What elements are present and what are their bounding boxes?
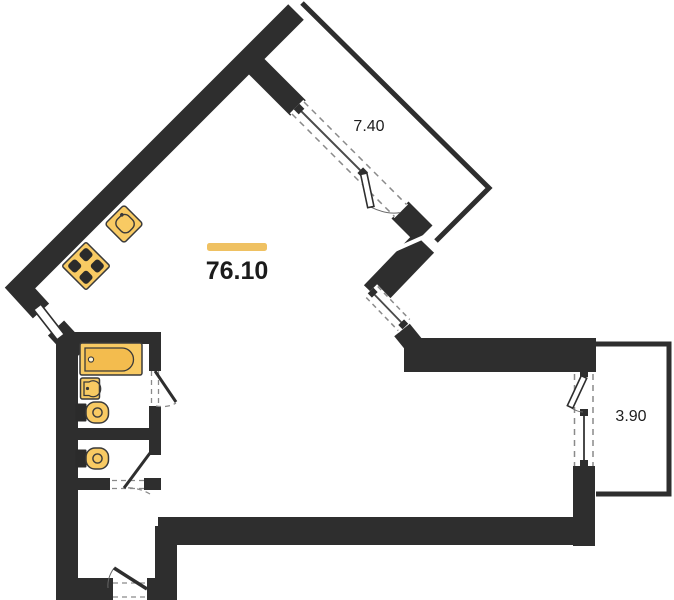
door-swing-arc	[156, 403, 176, 407]
toilet-bowl	[86, 402, 109, 423]
toilet-tank	[76, 450, 87, 468]
floor-plan-page: 76.10 7.40 3.90	[0, 0, 674, 600]
entrance-door	[108, 568, 147, 597]
balcony-walls	[302, 3, 669, 494]
bathtub-drain	[88, 357, 93, 362]
bathroom-door	[152, 371, 177, 407]
toilet-tank	[76, 404, 87, 422]
window-top-balcony	[282, 100, 408, 226]
window-tick	[580, 460, 588, 467]
door-leaf	[34, 304, 64, 339]
toilet	[76, 448, 109, 469]
wall-ne-pier	[254, 64, 298, 108]
wall-se-diagonal	[374, 243, 424, 295]
floor-plan: 76.10 7.40 3.90	[0, 0, 674, 600]
door-leaf	[114, 568, 147, 589]
wall-corner-connector	[402, 330, 415, 346]
living-area-label: 76.10	[206, 257, 269, 285]
area-highlight-bar	[207, 243, 267, 251]
window-tick	[580, 409, 588, 416]
balcony-top-area-label: 7.40	[353, 118, 384, 135]
toilet	[76, 402, 109, 423]
washbasin	[81, 378, 101, 399]
door-leaf	[155, 371, 176, 402]
bathtub	[80, 343, 142, 375]
washbasin-faucet	[86, 387, 89, 390]
toilet-bowl	[86, 448, 109, 469]
exterior-walls	[20, 12, 596, 600]
balcony-right-area-label: 3.90	[615, 408, 646, 425]
side-door	[34, 304, 64, 339]
window-right-balcony	[567, 370, 593, 467]
wall-ne-jamb	[400, 210, 424, 234]
